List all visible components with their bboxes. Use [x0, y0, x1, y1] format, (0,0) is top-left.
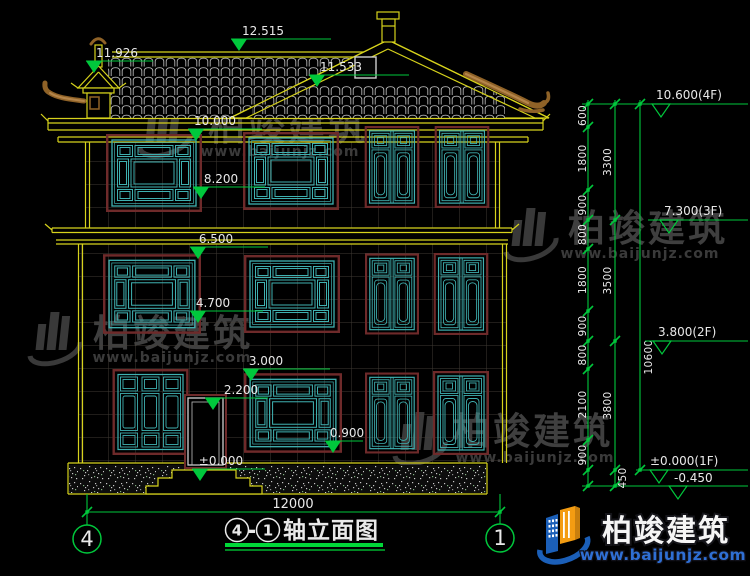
dim-segment: 600 — [577, 105, 589, 126]
dim-segment: 900 — [577, 445, 589, 466]
drawing-title: 4 - 1 轴立面图 — [225, 517, 385, 550]
axis-bubble-right: 1 — [486, 524, 514, 552]
roof — [41, 12, 550, 142]
dim-segment: 1800 — [577, 145, 589, 173]
title-dash: - — [247, 518, 258, 544]
dim-segment: 800 — [577, 345, 589, 366]
dim-segment: 2100 — [577, 391, 589, 419]
elevation-label: 3.000 — [249, 354, 283, 368]
level-label: ±0.000(1F) — [650, 454, 718, 468]
elevation-label: 11.533 — [320, 60, 362, 74]
level-label: -0.450 — [674, 471, 713, 485]
cad-canvas: 柏竣建筑 www.baijunjz.com 柏竣建筑 www.baijunjz.… — [0, 0, 750, 576]
axis-bubble-label: 4 — [80, 527, 93, 551]
title-axis-start: 4 — [232, 522, 242, 540]
dim-segment: 900 — [577, 316, 589, 337]
brand-logo-url: www.baijunjz.com — [580, 546, 746, 564]
dim-subtotal: 3800 — [602, 392, 614, 420]
width-dim-label: 12000 — [272, 497, 313, 512]
elevation-label: 11.926 — [96, 46, 138, 60]
elevation-label: 12.515 — [242, 24, 284, 38]
elevation-label: 8.200 — [204, 172, 238, 186]
level-markers: 10.600(4F) 7.300(3F) 3.800(2F) ±0.000(1F… — [636, 88, 748, 499]
level-label: 10.600(4F) — [656, 88, 722, 102]
chimney-finial — [377, 12, 399, 42]
elevation-drawing: 柏竣建筑 www.baijunjz.com 柏竣建筑 www.baijunjz.… — [0, 0, 750, 576]
level-label: 7.300(3F) — [664, 204, 722, 218]
mark-ridge: 12.515 — [231, 24, 331, 51]
dim-subtotal: 3300 — [602, 148, 614, 176]
elevation-label: 0.900 — [330, 426, 364, 440]
level-below-grade: -0.450 — [669, 471, 713, 499]
title-axis-end: 1 — [263, 522, 273, 540]
dim-segment: 900 — [577, 195, 589, 216]
axis-bubble-left: 4 — [73, 525, 101, 553]
brand-logo: 柏竣建筑 www.baijunjz.com — [540, 506, 746, 564]
elevation-label: 6.500 — [199, 232, 233, 246]
title-underline-thick — [225, 543, 383, 547]
dim-segment: 450 — [617, 468, 629, 489]
foundation — [68, 463, 487, 494]
elevation-label: 4.700 — [196, 296, 230, 310]
dim-segment: 800 — [577, 224, 589, 245]
elevation-label: 10.000 — [194, 114, 236, 128]
brand-logo-name: 柏竣建筑 — [602, 514, 730, 549]
elevation-label: 2.200 — [224, 383, 258, 397]
axis-bubble-label: 1 — [493, 526, 506, 550]
elevation-label: ±0.000 — [199, 454, 243, 468]
level-4f: 10.600(4F) — [640, 88, 748, 117]
dim-subtotal: 3500 — [602, 267, 614, 295]
dim-total: 10600 — [643, 340, 655, 375]
level-label: 3.800(2F) — [658, 325, 716, 339]
level-2f: 3.800(2F) — [645, 325, 748, 354]
title-text: 轴立面图 — [283, 517, 379, 544]
dim-segment: 1800 — [577, 266, 589, 294]
